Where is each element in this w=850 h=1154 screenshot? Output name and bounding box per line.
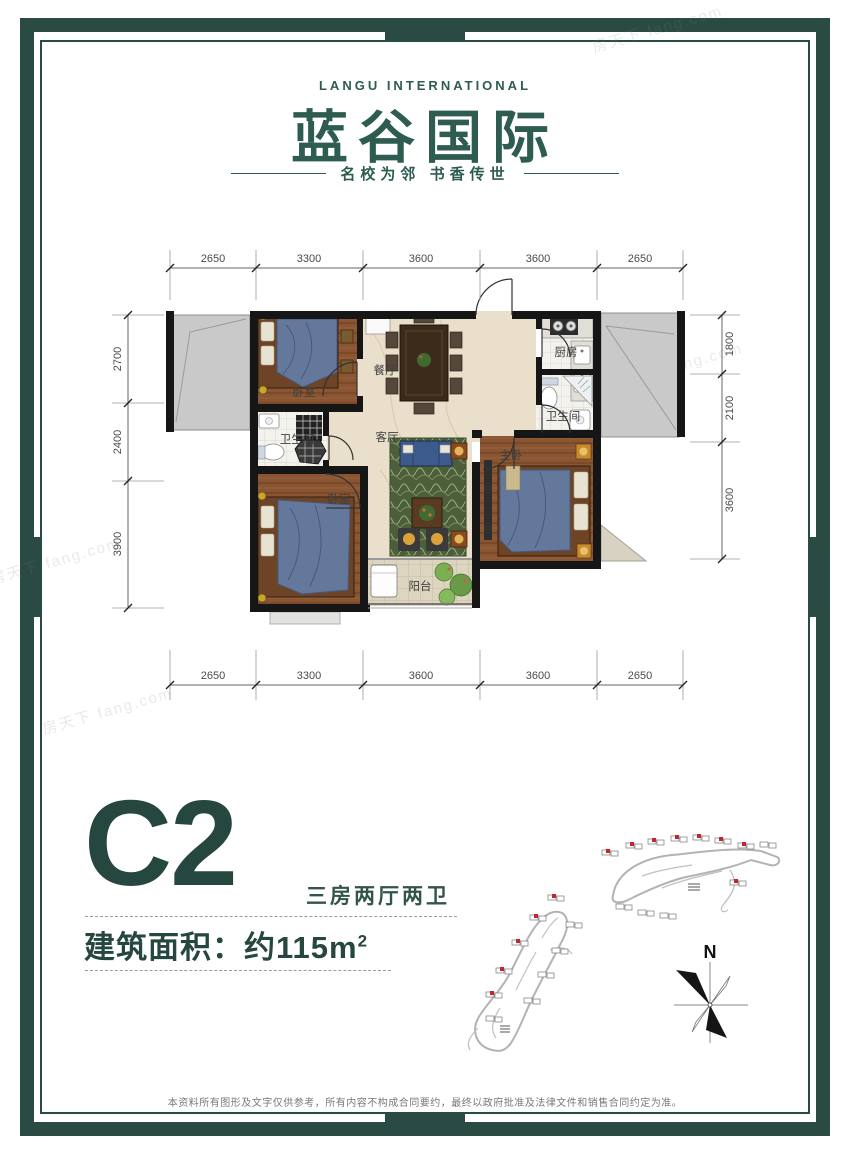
divider-dashed (85, 970, 391, 971)
dim-top: 3300 (297, 253, 321, 265)
dim-left: 2700 (112, 347, 124, 371)
dim-bottom: 2650 (201, 670, 225, 682)
frame-tab-top (385, 31, 465, 42)
unit-area-sup: 2 (358, 932, 368, 951)
label-living: 客厅 (376, 430, 399, 444)
toilet-tank (540, 378, 558, 385)
label-kitchen: 厨房 (555, 346, 578, 359)
label-bedroom2: 卧室 (328, 492, 351, 506)
dim-top: 3600 (526, 253, 550, 265)
tagline-rule-right (524, 173, 619, 174)
brand-name-en: LANGU INTERNATIONAL (0, 78, 850, 93)
compass-icon: N (674, 942, 748, 1043)
site-parcel-upper (602, 834, 779, 919)
unit-name: C2 (84, 776, 236, 910)
label-balcony: 阳台 (409, 579, 432, 593)
washing-machine (371, 565, 397, 597)
living-furniture (390, 438, 467, 556)
unit-area: 建筑面积：约115m2 (84, 922, 368, 967)
dim-left: 2400 (112, 430, 124, 454)
dim-top: 3600 (409, 253, 433, 265)
unit-area-text: 建筑面积：约115m (84, 930, 358, 965)
dim-bottom: 2650 (628, 670, 652, 682)
label-bedroom1: 卧室 (293, 385, 316, 399)
site-parcel-lower (468, 894, 582, 1051)
disclaimer-text: 本资料所有图形及文字仅供参考，所有内容不构成合同要约，最终以政府批准及法律文件和… (165, 1094, 685, 1109)
tagline-text: 名校为邻 书香传世 (340, 163, 509, 184)
plant (439, 589, 455, 605)
compass-north-label: N (704, 942, 717, 962)
platform-right (601, 313, 679, 437)
label-bath1: 卫生间 (280, 432, 315, 446)
dim-right: 2100 (724, 396, 736, 420)
brand-tagline: 名校为邻 书香传世 (0, 163, 850, 184)
entry-door (476, 279, 512, 315)
frame-tab-right (808, 537, 819, 617)
frame-tab-left (31, 537, 42, 617)
divider-dashed (85, 916, 457, 917)
dim-top: 2650 (628, 253, 652, 265)
dim-right: 1800 (724, 332, 736, 356)
dim-right: 3600 (724, 488, 736, 512)
label-dining: 餐厅 (374, 363, 397, 377)
tv-cabinet (484, 460, 492, 540)
dim-bottom: 3600 (526, 670, 550, 682)
tagline-rule-left (231, 173, 326, 174)
brand-name-zh: 蓝谷国际 (0, 92, 850, 174)
unit-layout: 三房两厅两卫 (306, 880, 450, 910)
platform-left (170, 315, 250, 430)
floor-plan: 卧室 餐厅 厨房 卫生间 客厅 卫生间 主卧 卧室 阳台 2650 3300 3… (100, 225, 770, 705)
flyer-page: 房天下 fang.com 房天下 fang.com 房天下 fang.com 房… (0, 0, 850, 1154)
watermark: 房天下 fang.com (590, 0, 725, 57)
site-plan: N (430, 800, 800, 1070)
frame-tab-bottom (385, 1112, 465, 1123)
label-bath2: 卫生间 (546, 409, 581, 423)
dim-bottom: 3600 (409, 670, 433, 682)
dim-top: 2650 (201, 253, 225, 265)
label-master: 主卧 (500, 449, 523, 462)
plant (435, 563, 453, 581)
dim-left: 3900 (112, 532, 124, 556)
dim-bottom: 3300 (297, 670, 321, 682)
